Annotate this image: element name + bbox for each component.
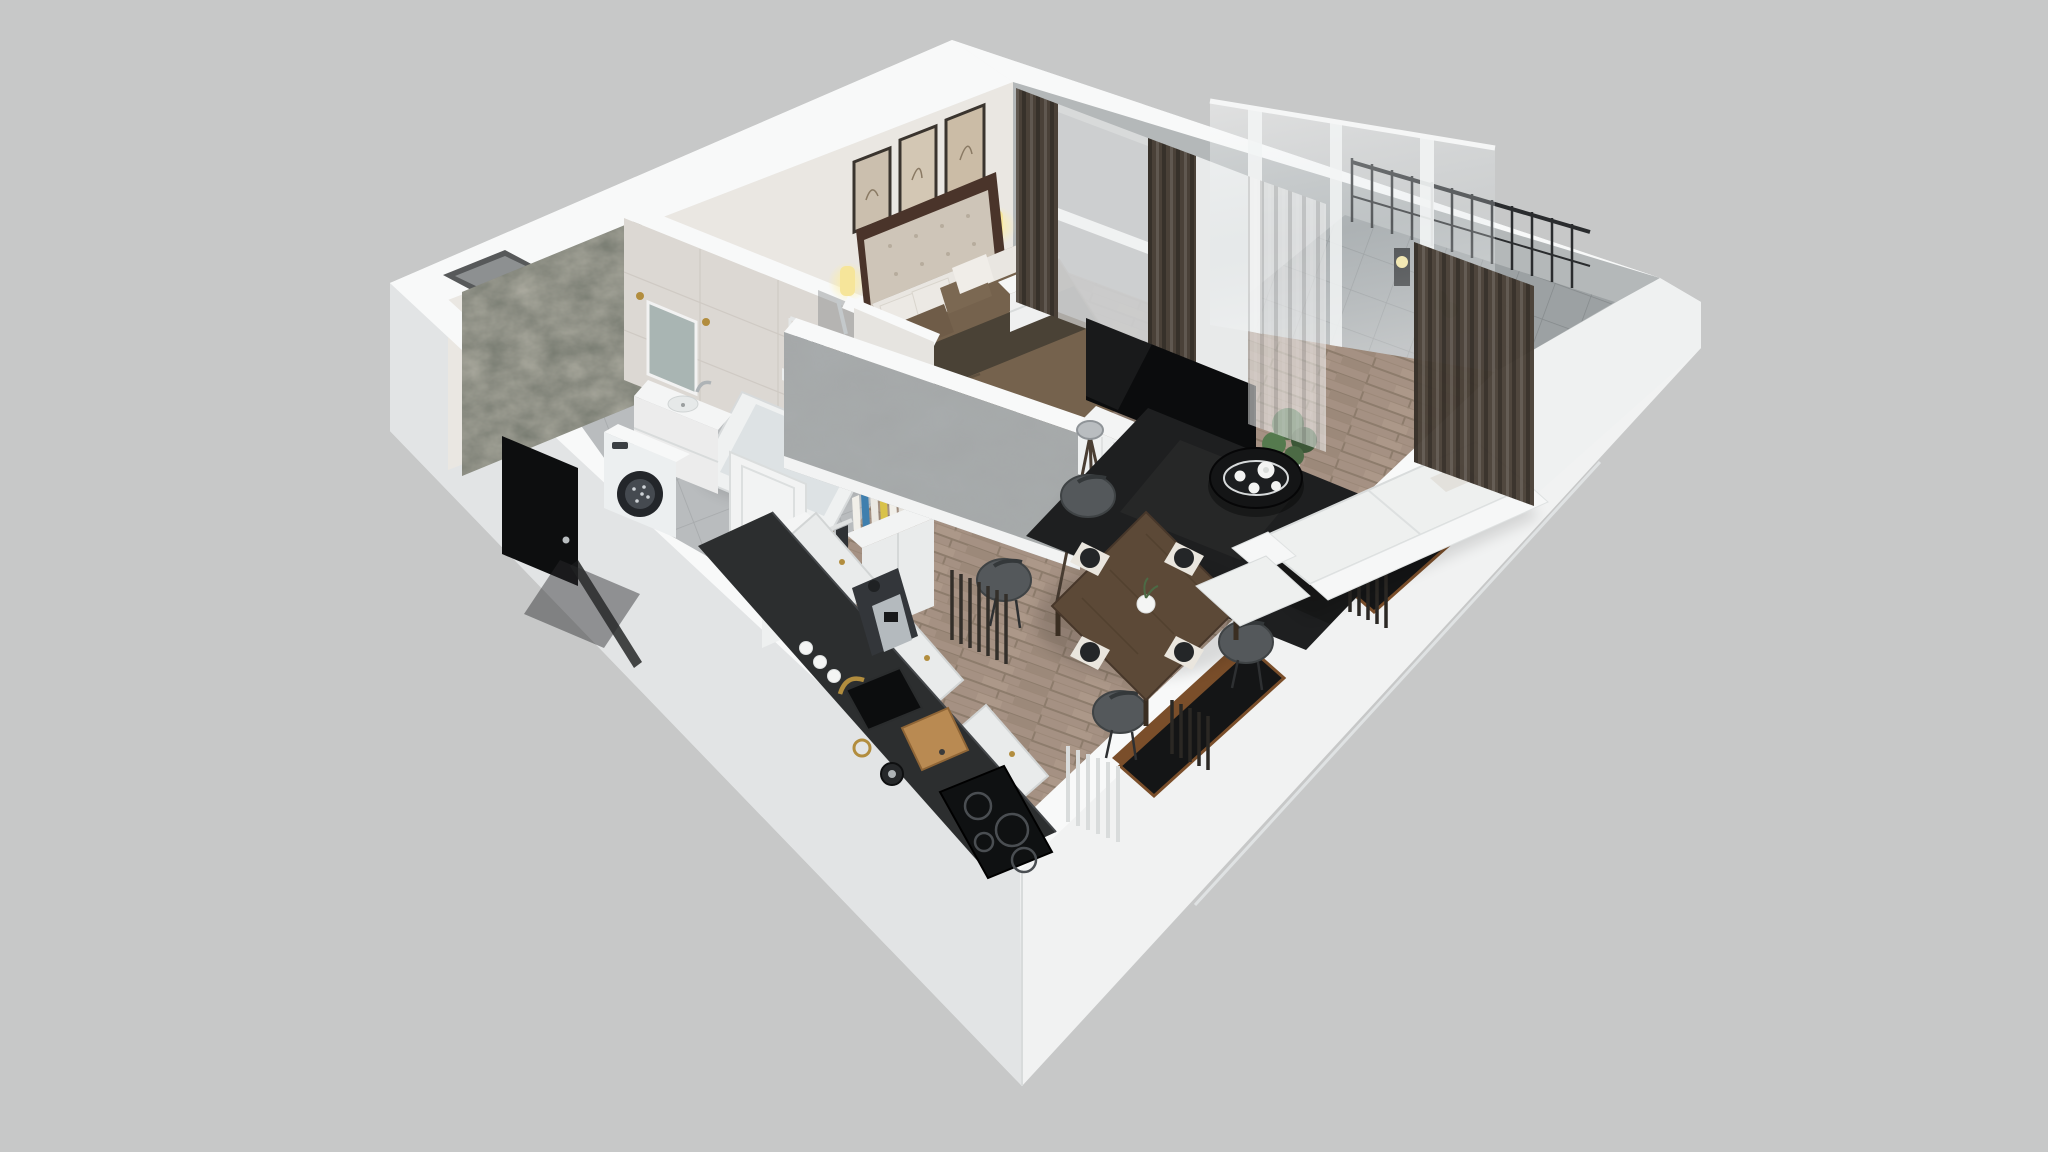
sink-drain-icon bbox=[681, 403, 685, 407]
curtain-left-pleats bbox=[1016, 88, 1058, 318]
board-hole-icon bbox=[939, 749, 945, 755]
cabinet-handle-1 bbox=[839, 559, 845, 565]
cabinet-handle-2 bbox=[924, 655, 930, 661]
dark-curtain-pleats bbox=[1414, 242, 1534, 506]
curtain-right-pleats bbox=[1148, 138, 1196, 368]
sconce-left-icon bbox=[840, 266, 855, 296]
washer-drum-icon bbox=[625, 479, 655, 509]
sheer-pleats bbox=[1248, 176, 1326, 452]
mirror-sconce-icon-2 bbox=[636, 292, 644, 300]
dining-chair-2 bbox=[977, 559, 1031, 601]
mirror-sconce-icon bbox=[702, 318, 710, 326]
lamp-head-icon bbox=[1077, 421, 1103, 439]
washer-panel-icon bbox=[612, 442, 628, 449]
cabinet-handle-3 bbox=[1009, 751, 1015, 757]
round-coffee-table bbox=[1208, 448, 1304, 517]
teacup-2 bbox=[1249, 483, 1260, 494]
teacup-1 bbox=[1235, 471, 1246, 482]
entry-door-handle-icon bbox=[563, 537, 570, 544]
teacup-3 bbox=[1271, 481, 1281, 491]
floor-plan-render bbox=[0, 0, 2048, 1152]
kettle-lid bbox=[888, 770, 896, 778]
dining-chair-4 bbox=[1219, 621, 1273, 663]
dining-chair-1 bbox=[1061, 475, 1115, 517]
glass-mullion-2 bbox=[1330, 121, 1342, 347]
dining-chair-3 bbox=[1093, 691, 1147, 733]
scene-canvas bbox=[0, 0, 2048, 1152]
